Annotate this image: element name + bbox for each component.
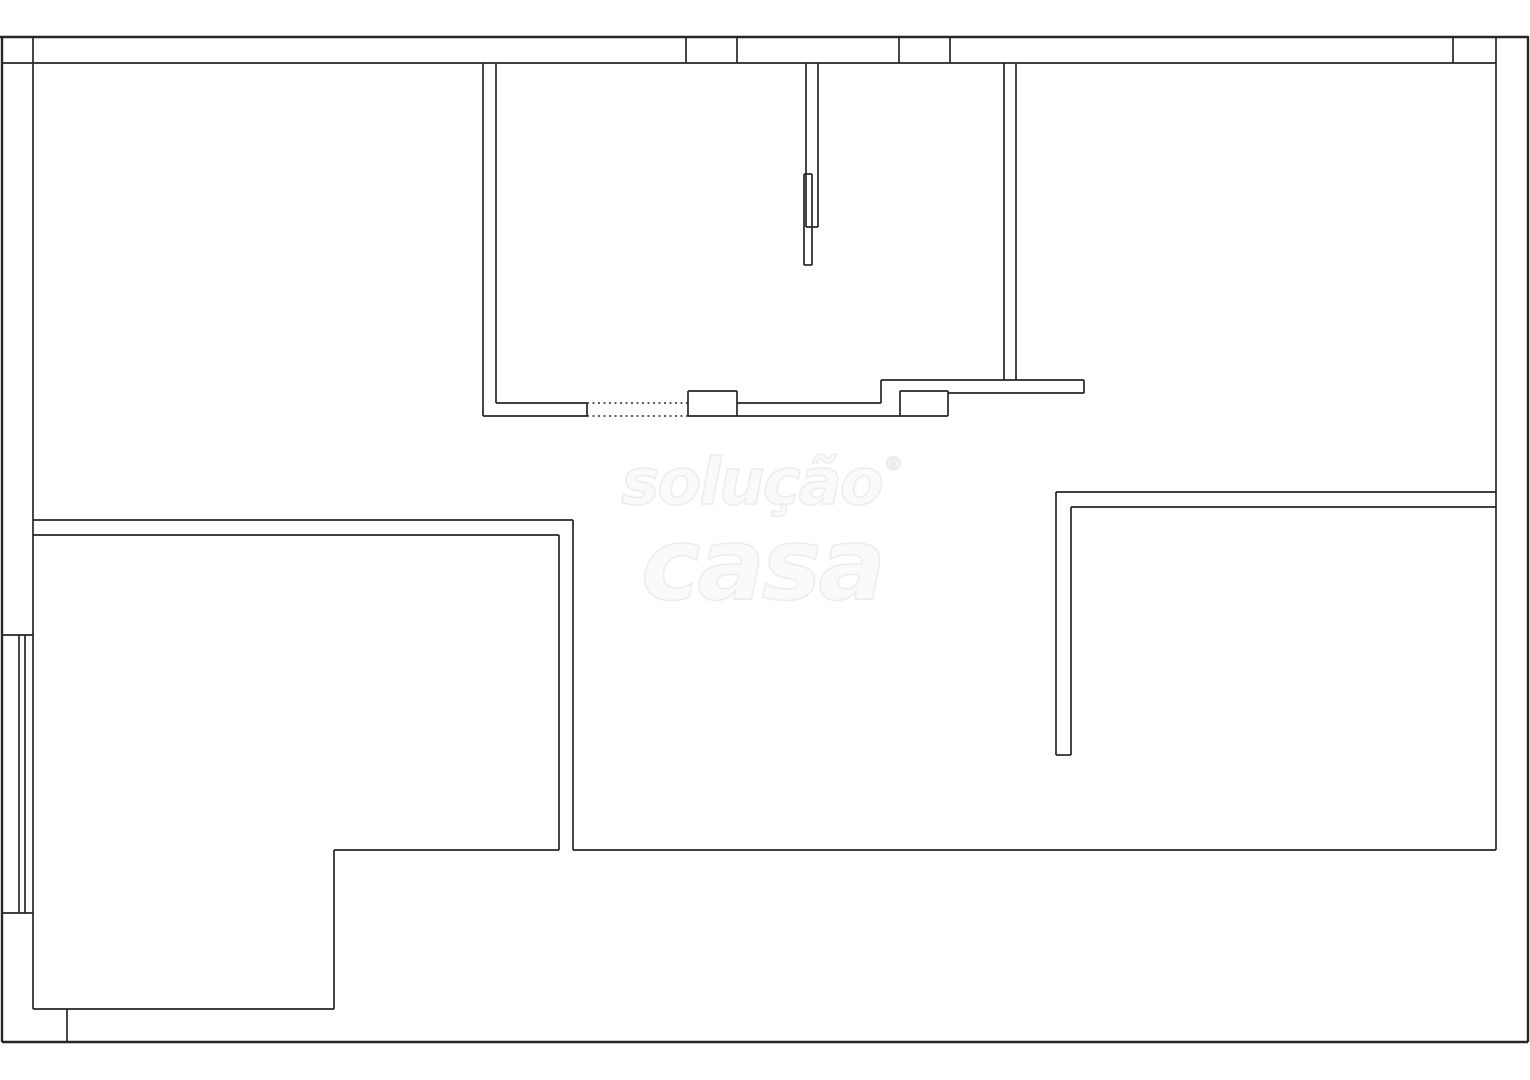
floor-plan: solução® casa [0, 0, 1530, 1080]
floor-plan-drawing [0, 0, 1530, 1080]
